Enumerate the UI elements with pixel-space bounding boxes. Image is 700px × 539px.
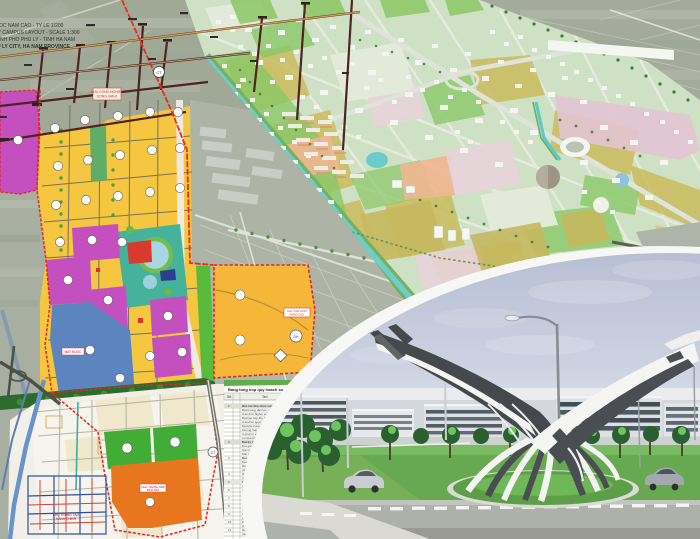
svg-text:THANH PHO PHU LY - TINH HA NAM: THANH PHO PHU LY - TINH HA NAM: [0, 37, 75, 43]
svg-text:NAM CAO: NAM CAO: [290, 313, 305, 317]
svg-text:PHU LY CITY, HA NAM PROVINCE: PHU LY CITY, HA NAM PROVINCE: [0, 44, 71, 50]
svg-text:HANH CHINH: HANH CHINH: [56, 517, 77, 521]
svg-text:CT: CT: [156, 70, 162, 75]
svg-text:11: 11: [228, 528, 231, 532]
svg-text:10: 10: [228, 520, 232, 524]
svg-text:DH: DH: [294, 335, 299, 339]
svg-text:MAT NUOC: MAT NUOC: [65, 350, 82, 354]
svg-text:DONG VAN II: DONG VAN II: [97, 95, 118, 99]
svg-text:SITY CAMPUS LAYOUT - SCALE 1:3: SITY CAMPUS LAYOUT - SCALE 1:300: [0, 30, 80, 36]
svg-text:DAO TAO: DAO TAO: [147, 488, 160, 492]
svg-text:Bang tong hop quy hoach su d: Bang tong hop quy hoach su d: [228, 387, 287, 392]
svg-text:KHU CONG NGHIEP: KHU CONG NGHIEP: [91, 90, 124, 94]
svg-text:CT: CT: [211, 451, 217, 455]
svg-text:Stt: Stt: [227, 395, 231, 399]
svg-text:G-HOC NAM CAO - TY LE 1/200: G-HOC NAM CAO - TY LE 1/200: [0, 23, 64, 29]
svg-text:Ten: Ten: [262, 395, 268, 399]
